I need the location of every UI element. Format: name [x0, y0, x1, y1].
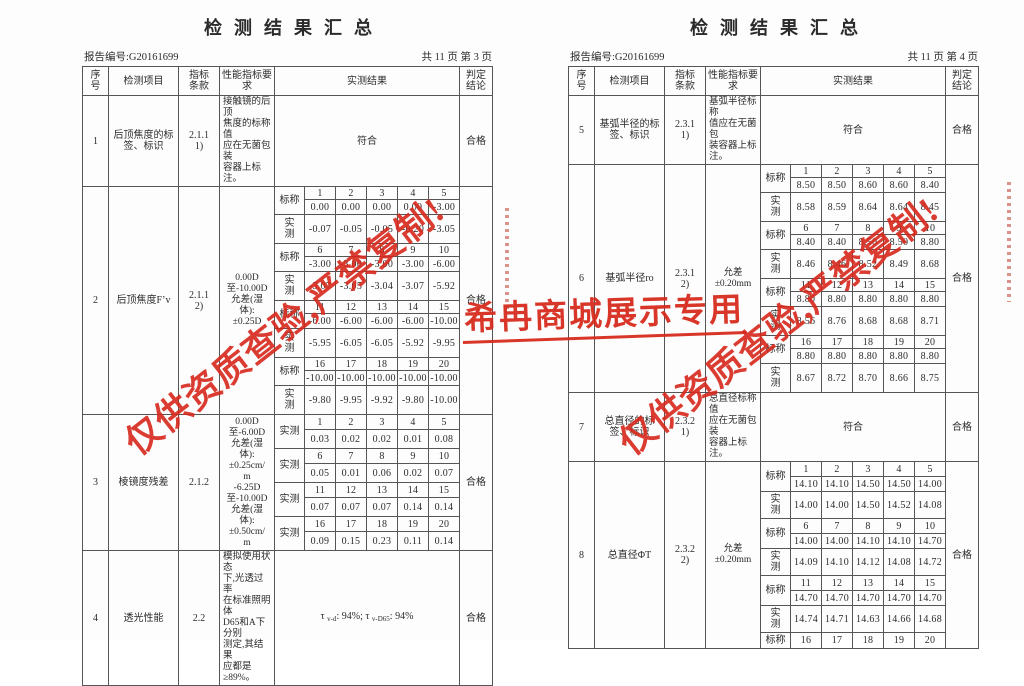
- nominal-value: 8.40: [822, 235, 853, 250]
- cell-verdict: 合格: [946, 165, 979, 393]
- cell-clause: 2.1.2: [179, 415, 220, 551]
- measured-value: -9.92: [367, 386, 398, 415]
- measured-value: 8.76: [822, 307, 853, 336]
- sample-number: 4: [884, 462, 915, 477]
- sample-number: 10: [915, 519, 946, 534]
- nominal-value: 14.70: [791, 591, 822, 606]
- row-label-nominal: 标称: [761, 336, 791, 364]
- measured-value: 8.49: [884, 250, 915, 279]
- sample-number: 19: [884, 633, 915, 649]
- nominal-value: -3.00: [398, 257, 429, 272]
- page-count-label: 共 11 页 第 4 页: [908, 49, 979, 64]
- sample-number: 12: [822, 279, 853, 292]
- cell-no: 3: [83, 415, 109, 551]
- nominal-value: 14.10: [853, 534, 884, 549]
- row-label-measured: 实 测: [275, 272, 305, 301]
- cell-spec: 总直径标称值 应在无菌包装 容器上标注。: [706, 393, 761, 462]
- nominal-value: -3.00: [429, 200, 460, 215]
- cell-item: 透光性能: [109, 551, 179, 686]
- nominal-value: 0.00: [336, 200, 367, 215]
- cell-result: τ v-d: 94%; τ v-D65: 94%: [275, 551, 460, 686]
- cell-no: 1: [83, 96, 109, 187]
- measured-value: -10.00: [429, 386, 460, 415]
- cell-verdict: 合格: [946, 393, 979, 462]
- row-label-measured: 实 测: [761, 193, 791, 222]
- cell-no: 7: [569, 393, 595, 462]
- sample-number: 18: [367, 358, 398, 371]
- sample-number: 14: [884, 576, 915, 591]
- measured-value: 0.03: [305, 430, 336, 449]
- nominal-value: 8.80: [915, 349, 946, 364]
- nominal-value: 8.60: [884, 178, 915, 193]
- sample-number: 4: [884, 165, 915, 178]
- measured-value: 8.75: [915, 364, 946, 393]
- measured-value: -6.05: [367, 329, 398, 358]
- cell-spec: 0.00D 至-6.00D 允差(湿 体): ±0.25cm/ m -6.25D…: [220, 415, 275, 551]
- sample-number: 1: [791, 165, 822, 178]
- sample-number: 19: [884, 336, 915, 349]
- row-label-measured: 实 测: [761, 364, 791, 393]
- report-page-4: 检测结果汇总 报告编号:G20161699 共 11 页 第 4 页 序 号检测…: [512, 0, 1024, 640]
- page-3-sheet: 检测结果汇总 报告编号:G20161699 共 11 页 第 3 页 序 号检测…: [82, 6, 494, 686]
- sample-number: 18: [367, 517, 398, 532]
- sample-number: 8: [367, 449, 398, 464]
- sample-number: 15: [429, 301, 460, 314]
- sample-number: 17: [336, 358, 367, 371]
- cell-result: 符合: [275, 96, 460, 187]
- column-header: 判定 结论: [460, 67, 493, 96]
- measured-value: -5.92: [398, 329, 429, 358]
- column-header: 实测结果: [275, 67, 460, 96]
- nominal-value: 8.80: [853, 349, 884, 364]
- measured-value: 0.06: [367, 464, 398, 483]
- measured-value: -5.95: [305, 329, 336, 358]
- cell-spec: 接触镜的后顶 焦度的标称值 应在无菌包装 容器上标注。: [220, 96, 275, 187]
- measured-value: 8.52: [853, 250, 884, 279]
- sample-number: 8: [853, 519, 884, 534]
- measured-value: 8.64: [884, 193, 915, 222]
- measured-value: 14.74: [791, 606, 822, 633]
- measured-value: -0.05: [367, 215, 398, 244]
- sample-number: 9: [398, 244, 429, 257]
- measured-value: 0.01: [398, 430, 429, 449]
- page-meta-row: 报告编号:G20161699 共 11 页 第 3 页: [82, 49, 494, 64]
- measured-value: 14.09: [791, 549, 822, 576]
- sample-number: 12: [336, 483, 367, 498]
- measured-value: 8.66: [884, 364, 915, 393]
- nominal-value: -10.00: [336, 371, 367, 386]
- sample-number: 10: [429, 244, 460, 257]
- cell-verdict: 合格: [460, 551, 493, 686]
- measured-value: 0.11: [398, 532, 429, 551]
- column-header: 序 号: [83, 67, 109, 96]
- cell-spec: 0.00D 至-10.00D 允差(湿 体): ±0.25D: [220, 187, 275, 415]
- measured-value: -9.80: [398, 386, 429, 415]
- sample-number: 1: [791, 462, 822, 477]
- nominal-value: 8.50: [853, 235, 884, 250]
- sample-number: 2: [336, 187, 367, 200]
- nominal-value: 8.80: [884, 292, 915, 307]
- sample-number: 2: [336, 415, 367, 430]
- row-label-nominal: 标称: [761, 279, 791, 307]
- row-label-measured: 实 测: [761, 606, 791, 633]
- measured-value: 14.50: [853, 492, 884, 519]
- nominal-value: -3.00: [367, 257, 398, 272]
- sample-number: 5: [915, 462, 946, 477]
- sample-number: 4: [398, 187, 429, 200]
- measured-value: 0.02: [336, 430, 367, 449]
- cell-clause: 2.3.2 1): [665, 393, 706, 462]
- sample-number: 7: [822, 519, 853, 534]
- sample-number: 17: [822, 336, 853, 349]
- measured-value: -3.07: [305, 272, 336, 301]
- row-label-measured: 实 测: [761, 250, 791, 279]
- sample-number: 18: [853, 336, 884, 349]
- sample-number: 14: [398, 301, 429, 314]
- sample-number: 13: [853, 576, 884, 591]
- row-label-nominal: 标称: [761, 462, 791, 492]
- sample-number: 8: [367, 244, 398, 257]
- nominal-value: -10.00: [305, 371, 336, 386]
- cell-no: 5: [569, 96, 595, 165]
- sample-number: 20: [429, 517, 460, 532]
- measured-value: 0.07: [429, 464, 460, 483]
- nominal-value: -3.00: [336, 257, 367, 272]
- row-label-measured: 实 测: [761, 307, 791, 336]
- measured-value: -3.05: [429, 215, 460, 244]
- sample-number: 5: [915, 165, 946, 178]
- cell-no: 2: [83, 187, 109, 415]
- nominal-value: 14.70: [822, 591, 853, 606]
- row-label-measured: 实测: [275, 517, 305, 551]
- row-label-nominal: 标称: [761, 165, 791, 193]
- nominal-value: 14.10: [791, 477, 822, 492]
- measured-value: 0.07: [305, 498, 336, 517]
- sample-number: 15: [915, 576, 946, 591]
- measured-value: 0.07: [336, 498, 367, 517]
- nominal-value: -3.00: [305, 257, 336, 272]
- measured-value: 0.01: [336, 464, 367, 483]
- measured-value: 8.46: [822, 250, 853, 279]
- report-number-label: 报告编号:G20161699: [84, 49, 179, 64]
- nominal-value: -10.00: [429, 371, 460, 386]
- measured-value: -3.05: [336, 272, 367, 301]
- cell-result: 符合: [761, 393, 946, 462]
- sample-number: 20: [915, 336, 946, 349]
- page-title: 检测结果汇总: [568, 14, 980, 40]
- nominal-value: 8.80: [853, 292, 884, 307]
- measured-value: 0.09: [305, 532, 336, 551]
- measured-value: 0.02: [398, 464, 429, 483]
- row-label-measured: 实 测: [275, 329, 305, 358]
- measured-value: 14.63: [853, 606, 884, 633]
- nominal-value: 14.10: [884, 534, 915, 549]
- row-label-nominal: 标称: [761, 519, 791, 549]
- measured-value: 8.68: [853, 307, 884, 336]
- sample-number: 15: [429, 483, 460, 498]
- measured-value: 0.14: [398, 498, 429, 517]
- page-count-label: 共 11 页 第 3 页: [422, 49, 493, 64]
- sample-number: 18: [853, 633, 884, 649]
- measured-value: 0.23: [367, 532, 398, 551]
- sample-number: 6: [791, 519, 822, 534]
- sample-number: 13: [367, 483, 398, 498]
- sample-number: 6: [305, 449, 336, 464]
- measured-value: 0.14: [429, 532, 460, 551]
- cell-item: 棱镜度残差: [109, 415, 179, 551]
- cell-clause: 2.2: [179, 551, 220, 686]
- row-label-measured: 实测: [275, 449, 305, 483]
- measured-value: 14.72: [915, 549, 946, 576]
- cell-item: 总直径的标 签、标识: [595, 393, 665, 462]
- measured-value: -9.95: [336, 386, 367, 415]
- column-header: 检测项目: [109, 67, 179, 96]
- measured-value: 14.10: [822, 549, 853, 576]
- measured-value: 8.46: [791, 250, 822, 279]
- sample-number: 16: [305, 358, 336, 371]
- sample-number: 9: [398, 449, 429, 464]
- sample-number: 11: [791, 279, 822, 292]
- measured-value: -9.80: [305, 386, 336, 415]
- results-table: 序 号检测项目指标 条款性能指标要求实测结果判定 结论1后顶焦度的标 签、标识2…: [82, 66, 493, 686]
- sample-number: 1: [305, 187, 336, 200]
- nominal-value: 14.10: [822, 477, 853, 492]
- nominal-value: 8.80: [791, 349, 822, 364]
- measured-value: 0.15: [336, 532, 367, 551]
- column-header: 性能指标要求: [706, 67, 761, 96]
- nominal-value: -6.00: [429, 257, 460, 272]
- nominal-value: 14.50: [884, 477, 915, 492]
- measured-value: 8.67: [791, 364, 822, 393]
- nominal-value: 0.00: [367, 200, 398, 215]
- nominal-value: 8.50: [884, 235, 915, 250]
- edge-seal-mark-left: [505, 208, 509, 313]
- nominal-value: 14.00: [822, 534, 853, 549]
- cell-item: 总直径ΦT: [595, 462, 665, 649]
- edge-seal-mark-right: [1007, 182, 1011, 302]
- report-page-3: 检测结果汇总 报告编号:G20161699 共 11 页 第 3 页 序 号检测…: [0, 0, 512, 640]
- nominal-value: -6.00: [367, 314, 398, 329]
- row-label-nominal: 标称: [761, 576, 791, 606]
- row-label-measured: 实测: [275, 415, 305, 449]
- measured-value: 14.52: [884, 492, 915, 519]
- measured-value: 0.07: [367, 498, 398, 517]
- sample-number: 12: [336, 301, 367, 314]
- nominal-value: 14.70: [915, 534, 946, 549]
- sample-number: 3: [367, 415, 398, 430]
- cell-no: 6: [569, 165, 595, 393]
- row-label-nominal: 标称: [275, 244, 305, 272]
- nominal-value: 14.00: [791, 534, 822, 549]
- cell-spec: 允差 ±0.20mm: [706, 462, 761, 649]
- row-label-nominal: 标称: [761, 633, 791, 649]
- nominal-value: 14.70: [853, 591, 884, 606]
- column-header: 指标 条款: [179, 67, 220, 96]
- column-header: 性能指标要求: [220, 67, 275, 96]
- sample-number: 10: [915, 222, 946, 235]
- sample-number: 3: [853, 165, 884, 178]
- sample-number: 13: [853, 279, 884, 292]
- sample-number: 15: [915, 279, 946, 292]
- measured-value: -0.20: [398, 215, 429, 244]
- measured-value: 8.45: [915, 193, 946, 222]
- cell-result: 符合: [761, 96, 946, 165]
- nominal-value: 8.80: [822, 349, 853, 364]
- measured-value: -0.07: [305, 215, 336, 244]
- measured-value: 8.59: [822, 193, 853, 222]
- nominal-value: 14.00: [915, 477, 946, 492]
- measured-value: -9.95: [429, 329, 460, 358]
- report-number-label: 报告编号:G20161699: [570, 49, 665, 64]
- measured-value: 8.72: [822, 364, 853, 393]
- cell-no: 8: [569, 462, 595, 649]
- measured-value: 8.71: [915, 307, 946, 336]
- nominal-value: 8.80: [791, 292, 822, 307]
- sample-number: 17: [336, 517, 367, 532]
- nominal-value: 8.40: [791, 235, 822, 250]
- cell-verdict: 合格: [946, 96, 979, 165]
- nominal-value: -10.00: [398, 371, 429, 386]
- measured-value: -0.05: [336, 215, 367, 244]
- row-label-measured: 实 测: [275, 215, 305, 244]
- nominal-value: 8.40: [915, 178, 946, 193]
- column-header: 序 号: [569, 67, 595, 96]
- measured-value: 14.00: [791, 492, 822, 519]
- nominal-value: 8.50: [791, 178, 822, 193]
- row-label-nominal: 标称: [275, 187, 305, 215]
- column-header: 检测项目: [595, 67, 665, 96]
- sample-number: 11: [791, 576, 822, 591]
- page-meta-row: 报告编号:G20161699 共 11 页 第 4 页: [568, 49, 980, 64]
- results-table: 序 号检测项目指标 条款性能指标要求实测结果判定 结论5基弧半径的标 签、标识2…: [568, 66, 979, 649]
- row-label-measured: 实 测: [761, 549, 791, 576]
- nominal-value: 8.60: [853, 178, 884, 193]
- sample-number: 7: [336, 244, 367, 257]
- cell-clause: 2.1.1 2): [179, 187, 220, 415]
- measured-value: 14.12: [853, 549, 884, 576]
- sample-number: 2: [822, 462, 853, 477]
- cell-verdict: 合格: [460, 187, 493, 415]
- sample-number: 3: [853, 462, 884, 477]
- sample-number: 20: [915, 633, 946, 649]
- sample-number: 17: [822, 633, 853, 649]
- page-4-sheet: 检测结果汇总 报告编号:G20161699 共 11 页 第 4 页 序 号检测…: [568, 6, 980, 649]
- nominal-value: -6.00: [398, 314, 429, 329]
- measured-value: -6.05: [336, 329, 367, 358]
- row-label-measured: 实 测: [275, 386, 305, 415]
- cell-clause: 2.3.2 2): [665, 462, 706, 649]
- sample-number: 6: [305, 244, 336, 257]
- measured-value: -3.04: [367, 272, 398, 301]
- measured-value: 14.08: [915, 492, 946, 519]
- column-header: 实测结果: [761, 67, 946, 96]
- sample-number: 4: [398, 415, 429, 430]
- cell-item: 基弧半径的标 签、标识: [595, 96, 665, 165]
- sample-number: 20: [429, 358, 460, 371]
- sample-number: 8: [853, 222, 884, 235]
- nominal-value: 14.70: [915, 591, 946, 606]
- measured-value: 8.56: [791, 307, 822, 336]
- nominal-value: 8.80: [884, 349, 915, 364]
- measured-value: 14.08: [884, 549, 915, 576]
- measured-value: 8.70: [853, 364, 884, 393]
- sample-number: 19: [398, 517, 429, 532]
- nominal-value: 0.00: [398, 200, 429, 215]
- column-header: 判定 结论: [946, 67, 979, 96]
- measured-value: 8.68: [884, 307, 915, 336]
- cell-item: 后顶焦度F’v: [109, 187, 179, 415]
- measured-value: 0.05: [305, 464, 336, 483]
- cell-spec: 模拟使用状态 下,光透过率 在标准照明体 D65和A下分别 测定,其结果 应都是…: [220, 551, 275, 686]
- row-label-nominal: 标称: [275, 358, 305, 386]
- sample-number: 16: [791, 336, 822, 349]
- cell-spec: 基弧半径标称 值应在无菌包 装容器上标 注。: [706, 96, 761, 165]
- sample-number: 3: [367, 187, 398, 200]
- sample-number: 16: [791, 633, 822, 649]
- measured-value: 14.00: [822, 492, 853, 519]
- measured-value: 8.58: [791, 193, 822, 222]
- sample-number: 11: [305, 301, 336, 314]
- cell-verdict: 合格: [946, 462, 979, 649]
- cell-spec: 允差 ±0.20mm: [706, 165, 761, 393]
- sample-number: 1: [305, 415, 336, 430]
- sample-number: 12: [822, 576, 853, 591]
- nominal-value: 8.80: [915, 235, 946, 250]
- nominal-value: -6.00: [305, 314, 336, 329]
- nominal-value: 8.80: [915, 292, 946, 307]
- measured-value: 14.66: [884, 606, 915, 633]
- measured-value: 0.02: [367, 430, 398, 449]
- nominal-value: 14.50: [853, 477, 884, 492]
- cell-clause: 2.1.1 1): [179, 96, 220, 187]
- sample-number: 10: [429, 449, 460, 464]
- cell-verdict: 合格: [460, 96, 493, 187]
- measured-value: 8.64: [853, 193, 884, 222]
- sample-number: 9: [884, 222, 915, 235]
- cell-clause: 2.3.1 1): [665, 96, 706, 165]
- measured-value: -5.92: [429, 272, 460, 301]
- measured-value: 14.71: [822, 606, 853, 633]
- sample-number: 9: [884, 519, 915, 534]
- sample-number: 11: [305, 483, 336, 498]
- cell-item: 基弧半径ro: [595, 165, 665, 393]
- nominal-value: -6.00: [336, 314, 367, 329]
- sample-number: 5: [429, 415, 460, 430]
- sample-number: 6: [791, 222, 822, 235]
- sample-number: 2: [822, 165, 853, 178]
- row-label-nominal: 标称: [761, 222, 791, 250]
- sample-number: 14: [884, 279, 915, 292]
- nominal-value: 8.50: [822, 178, 853, 193]
- measured-value: -3.07: [398, 272, 429, 301]
- sample-number: 16: [305, 517, 336, 532]
- sample-number: 19: [398, 358, 429, 371]
- cell-no: 4: [83, 551, 109, 686]
- row-label-nominal: 标称: [275, 301, 305, 329]
- nominal-value: 14.70: [884, 591, 915, 606]
- cell-clause: 2.3.1 2): [665, 165, 706, 393]
- measured-value: 0.08: [429, 430, 460, 449]
- nominal-value: -10.00: [367, 371, 398, 386]
- row-label-measured: 实 测: [761, 492, 791, 519]
- sample-number: 7: [336, 449, 367, 464]
- nominal-value: 0.00: [305, 200, 336, 215]
- row-label-measured: 实测: [275, 483, 305, 517]
- sample-number: 14: [398, 483, 429, 498]
- measured-value: 14.68: [915, 606, 946, 633]
- cell-item: 后顶焦度的标 签、标识: [109, 96, 179, 187]
- measured-value: 8.68: [915, 250, 946, 279]
